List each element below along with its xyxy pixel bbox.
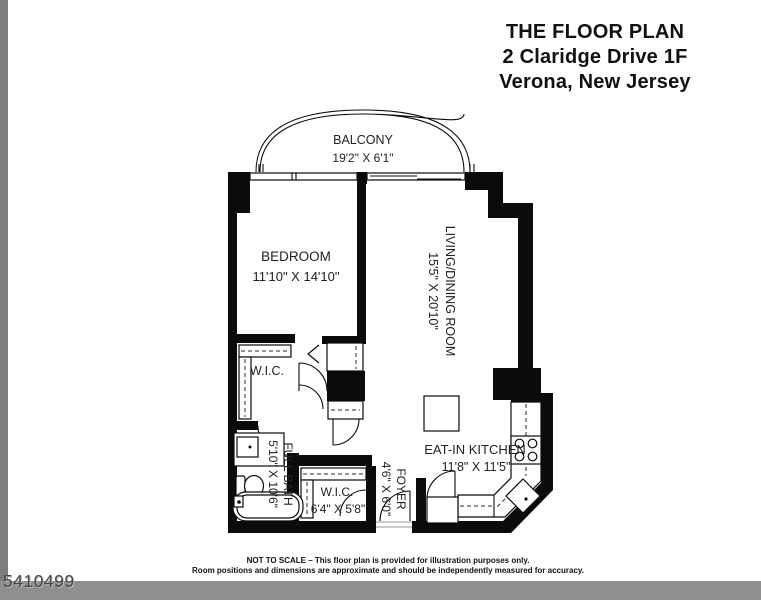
kitchen-dims: 11'8" X 11'5" xyxy=(416,460,536,474)
closet-door-arc xyxy=(333,419,359,445)
living-room-label: LIVING/DINING ROOM xyxy=(441,226,458,357)
bottom-wall-left xyxy=(228,521,376,533)
disclaimer: NOT TO SCALE – This floor plan is provid… xyxy=(98,556,678,576)
kitchen-right-wall xyxy=(541,398,553,490)
disclaimer-line2: Room positions and dimensions are approx… xyxy=(98,566,678,576)
bedroom-bottom-wall-left xyxy=(237,334,295,343)
wic2-top-wall xyxy=(299,455,372,466)
wic-upper-label: W.I.C. xyxy=(237,364,297,378)
living-room-dims: 15'5" X 20'10" xyxy=(424,226,441,357)
bath-top-wall xyxy=(228,421,258,430)
balcony-dims: 19'2" X 6'1" xyxy=(303,151,423,165)
bedroom-window xyxy=(250,173,357,180)
hall-column xyxy=(327,371,365,401)
full-bath-label-block: FULL BATH 5'10" X 10'6" xyxy=(265,440,295,508)
hall-door-arc-2 xyxy=(299,385,323,409)
bedroom-dims: 11'10" X 14'10" xyxy=(236,269,356,284)
foyer-kitchen-wall xyxy=(416,478,426,521)
vanity-sink xyxy=(237,437,258,457)
floor-plan-page: THE FLOOR PLAN 2 Claridge Drive 1F Veron… xyxy=(0,0,761,600)
full-bath-label: FULL BATH xyxy=(280,440,295,508)
wic-lower-dims: 6'4" X 5'8" xyxy=(298,502,378,516)
wic-lower-label: W.I.C. xyxy=(297,485,377,499)
bedroom-living-wall xyxy=(357,184,366,343)
kitchen-door-arc xyxy=(427,471,455,499)
top-right-stepped-wall xyxy=(465,172,533,368)
foyer-label-block: FOYER 4'6" X 6'0" xyxy=(378,462,408,516)
hall-door-arc-1 xyxy=(299,363,327,391)
disclaimer-line1: NOT TO SCALE – This floor plan is provid… xyxy=(98,556,678,566)
balcony-label: BALCONY xyxy=(303,133,423,147)
refrigerator xyxy=(427,497,458,523)
top-middle-wall-stub xyxy=(357,172,367,184)
hall-closet-upper xyxy=(327,343,363,371)
kitchen-label: EAT-IN KITCHEN xyxy=(415,442,535,457)
living-room-label-block: LIVING/DINING ROOM 15'5" X 20'10" xyxy=(424,226,458,357)
dining-table xyxy=(424,396,459,431)
bedroom-label: BEDROOM xyxy=(236,249,356,264)
bifold-door-icon xyxy=(308,345,319,363)
watermark-number: 5410499 xyxy=(3,571,75,592)
foyer-label: FOYER xyxy=(393,462,408,516)
foyer-dims: 4'6" X 6'0" xyxy=(378,462,393,516)
full-bath-dims: 5'10" X 10'6" xyxy=(265,440,280,508)
windows xyxy=(250,173,465,180)
